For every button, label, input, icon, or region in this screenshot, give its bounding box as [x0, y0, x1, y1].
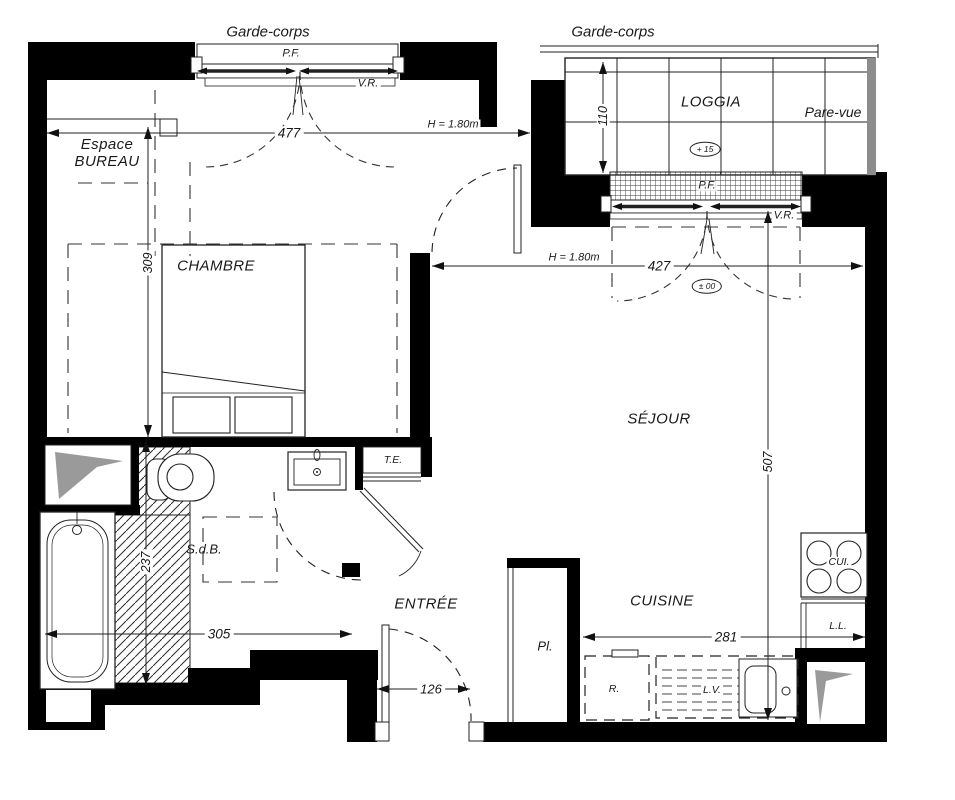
fixture-label-ll: L.L. [829, 621, 847, 632]
note-h180-chambre: H = 1.80m [425, 120, 480, 131]
window-label-vr-chambre: V.R. [356, 79, 381, 90]
espace-bureau-line2: BUREAU [75, 153, 140, 170]
duct-box-kitchen [807, 662, 865, 724]
dim-chambre-width: 477 [275, 126, 304, 140]
dim-sejour-depth: 507 [762, 450, 775, 475]
fixture-label-te: T.E. [384, 455, 402, 466]
room-label-cuisine: CUISINE [630, 594, 694, 609]
note-h180-sejour: H = 1.80m [546, 253, 601, 264]
pare-vue-screen [867, 58, 876, 175]
label-garde-corps-right: Garde-corps [571, 25, 654, 40]
room-label-espace-bureau: Espace BUREAU [75, 136, 140, 171]
room-label-loggia: LOGGIA [681, 95, 741, 110]
duct-box-bathroom [45, 445, 131, 505]
dim-entree-door: 126 [417, 683, 445, 696]
dim-loggia-depth: 110 [597, 104, 610, 128]
exterior-niche [46, 690, 91, 722]
pare-vue-label: Pare-vue [805, 105, 862, 119]
fixture-label-pl: Pl. [537, 640, 552, 653]
window-label-vr-sejour: V.R. [772, 211, 797, 222]
room-label-entree: ENTRÉE [394, 597, 457, 612]
floor-plan: Garde-corps Garde-corps P.F. V.R. Espace… [0, 0, 955, 800]
level-badge-loggia: + 15 [690, 142, 721, 157]
fixture-label-refrigerator: R. [607, 684, 622, 695]
toilet [147, 454, 214, 501]
room-label-chambre: CHAMBRE [177, 259, 255, 274]
washbasin [288, 450, 346, 491]
level-badge-sejour: ± 00 [692, 279, 722, 294]
fixture-label-cui: CUI. [827, 557, 852, 568]
dim-sejour-width: 427 [645, 259, 674, 273]
room-label-sdb: S.d.B. [186, 543, 221, 556]
window-label-pf-sejour: P.F. [696, 181, 717, 192]
bathtub [40, 512, 115, 689]
label-garde-corps-left: Garde-corps [226, 25, 309, 40]
dim-chambre-depth: 309 [142, 251, 155, 276]
dim-sdb-depth: 237 [140, 550, 153, 575]
room-label-sejour: SÉJOUR [627, 412, 690, 427]
dim-sdb-width: 305 [205, 627, 234, 641]
window-label-pf-chambre: P.F. [282, 49, 299, 60]
dim-cuisine-width: 281 [712, 630, 741, 644]
fixture-label-lv: L.V. [701, 685, 723, 696]
espace-bureau-line1: Espace [75, 136, 140, 153]
